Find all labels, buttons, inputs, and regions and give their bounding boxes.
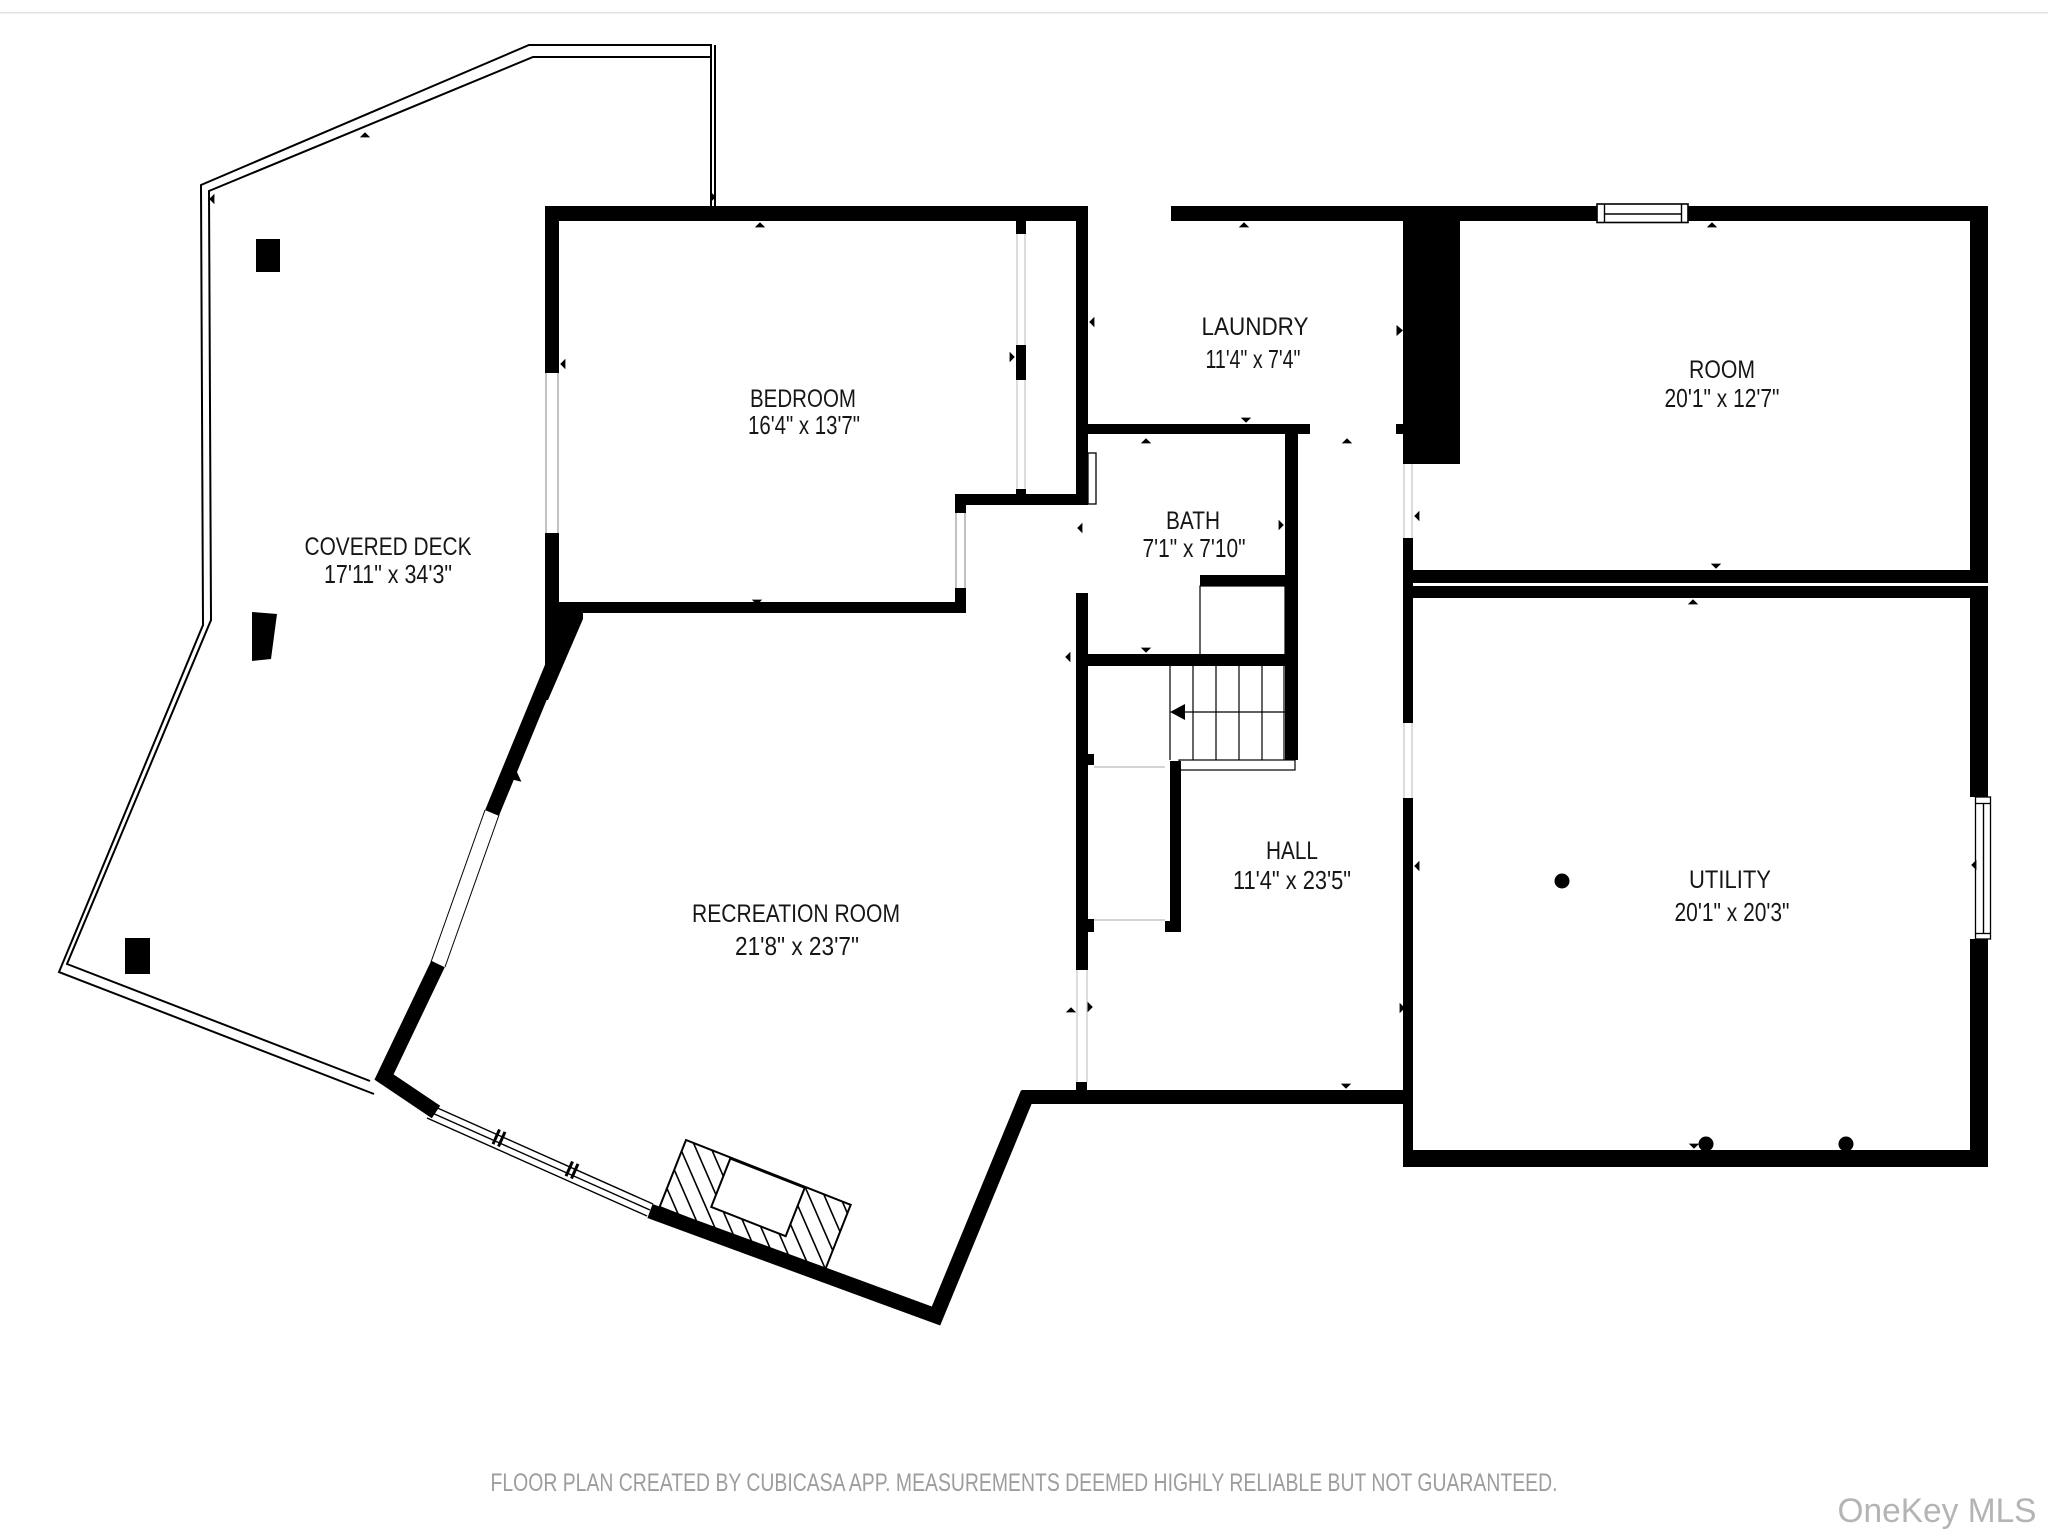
- svg-text:RECREATION ROOM: RECREATION ROOM: [692, 900, 900, 928]
- svg-text:COVERED DECK: COVERED DECK: [305, 533, 472, 561]
- svg-text:BATH: BATH: [1166, 507, 1220, 535]
- svg-text:FLOOR PLAN CREATED BY CUBICASA: FLOOR PLAN CREATED BY CUBICASA APP. MEAS…: [491, 1469, 1558, 1497]
- svg-text:11'4" x 23'5": 11'4" x 23'5": [1233, 865, 1351, 895]
- svg-text:OneKey MLS: OneKey MLS: [1838, 1492, 2037, 1530]
- svg-text:20'1" x 12'7": 20'1" x 12'7": [1665, 383, 1780, 413]
- svg-text:11'4" x 7'4": 11'4" x 7'4": [1206, 344, 1301, 374]
- svg-text:LAUNDRY: LAUNDRY: [1202, 313, 1309, 341]
- svg-text:16'4" x 13'7": 16'4" x 13'7": [748, 410, 860, 440]
- svg-text:21'8" x 23'7": 21'8" x 23'7": [735, 931, 859, 961]
- svg-text:17'11" x 34'3": 17'11" x 34'3": [324, 559, 452, 589]
- svg-text:BEDROOM: BEDROOM: [750, 385, 856, 413]
- svg-text:HALL: HALL: [1266, 837, 1318, 865]
- svg-text:ROOM: ROOM: [1689, 356, 1755, 384]
- svg-text:7'1" x 7'10": 7'1" x 7'10": [1143, 533, 1246, 563]
- svg-text:20'1" x 20'3": 20'1" x 20'3": [1675, 897, 1790, 927]
- svg-text:UTILITY: UTILITY: [1689, 866, 1771, 894]
